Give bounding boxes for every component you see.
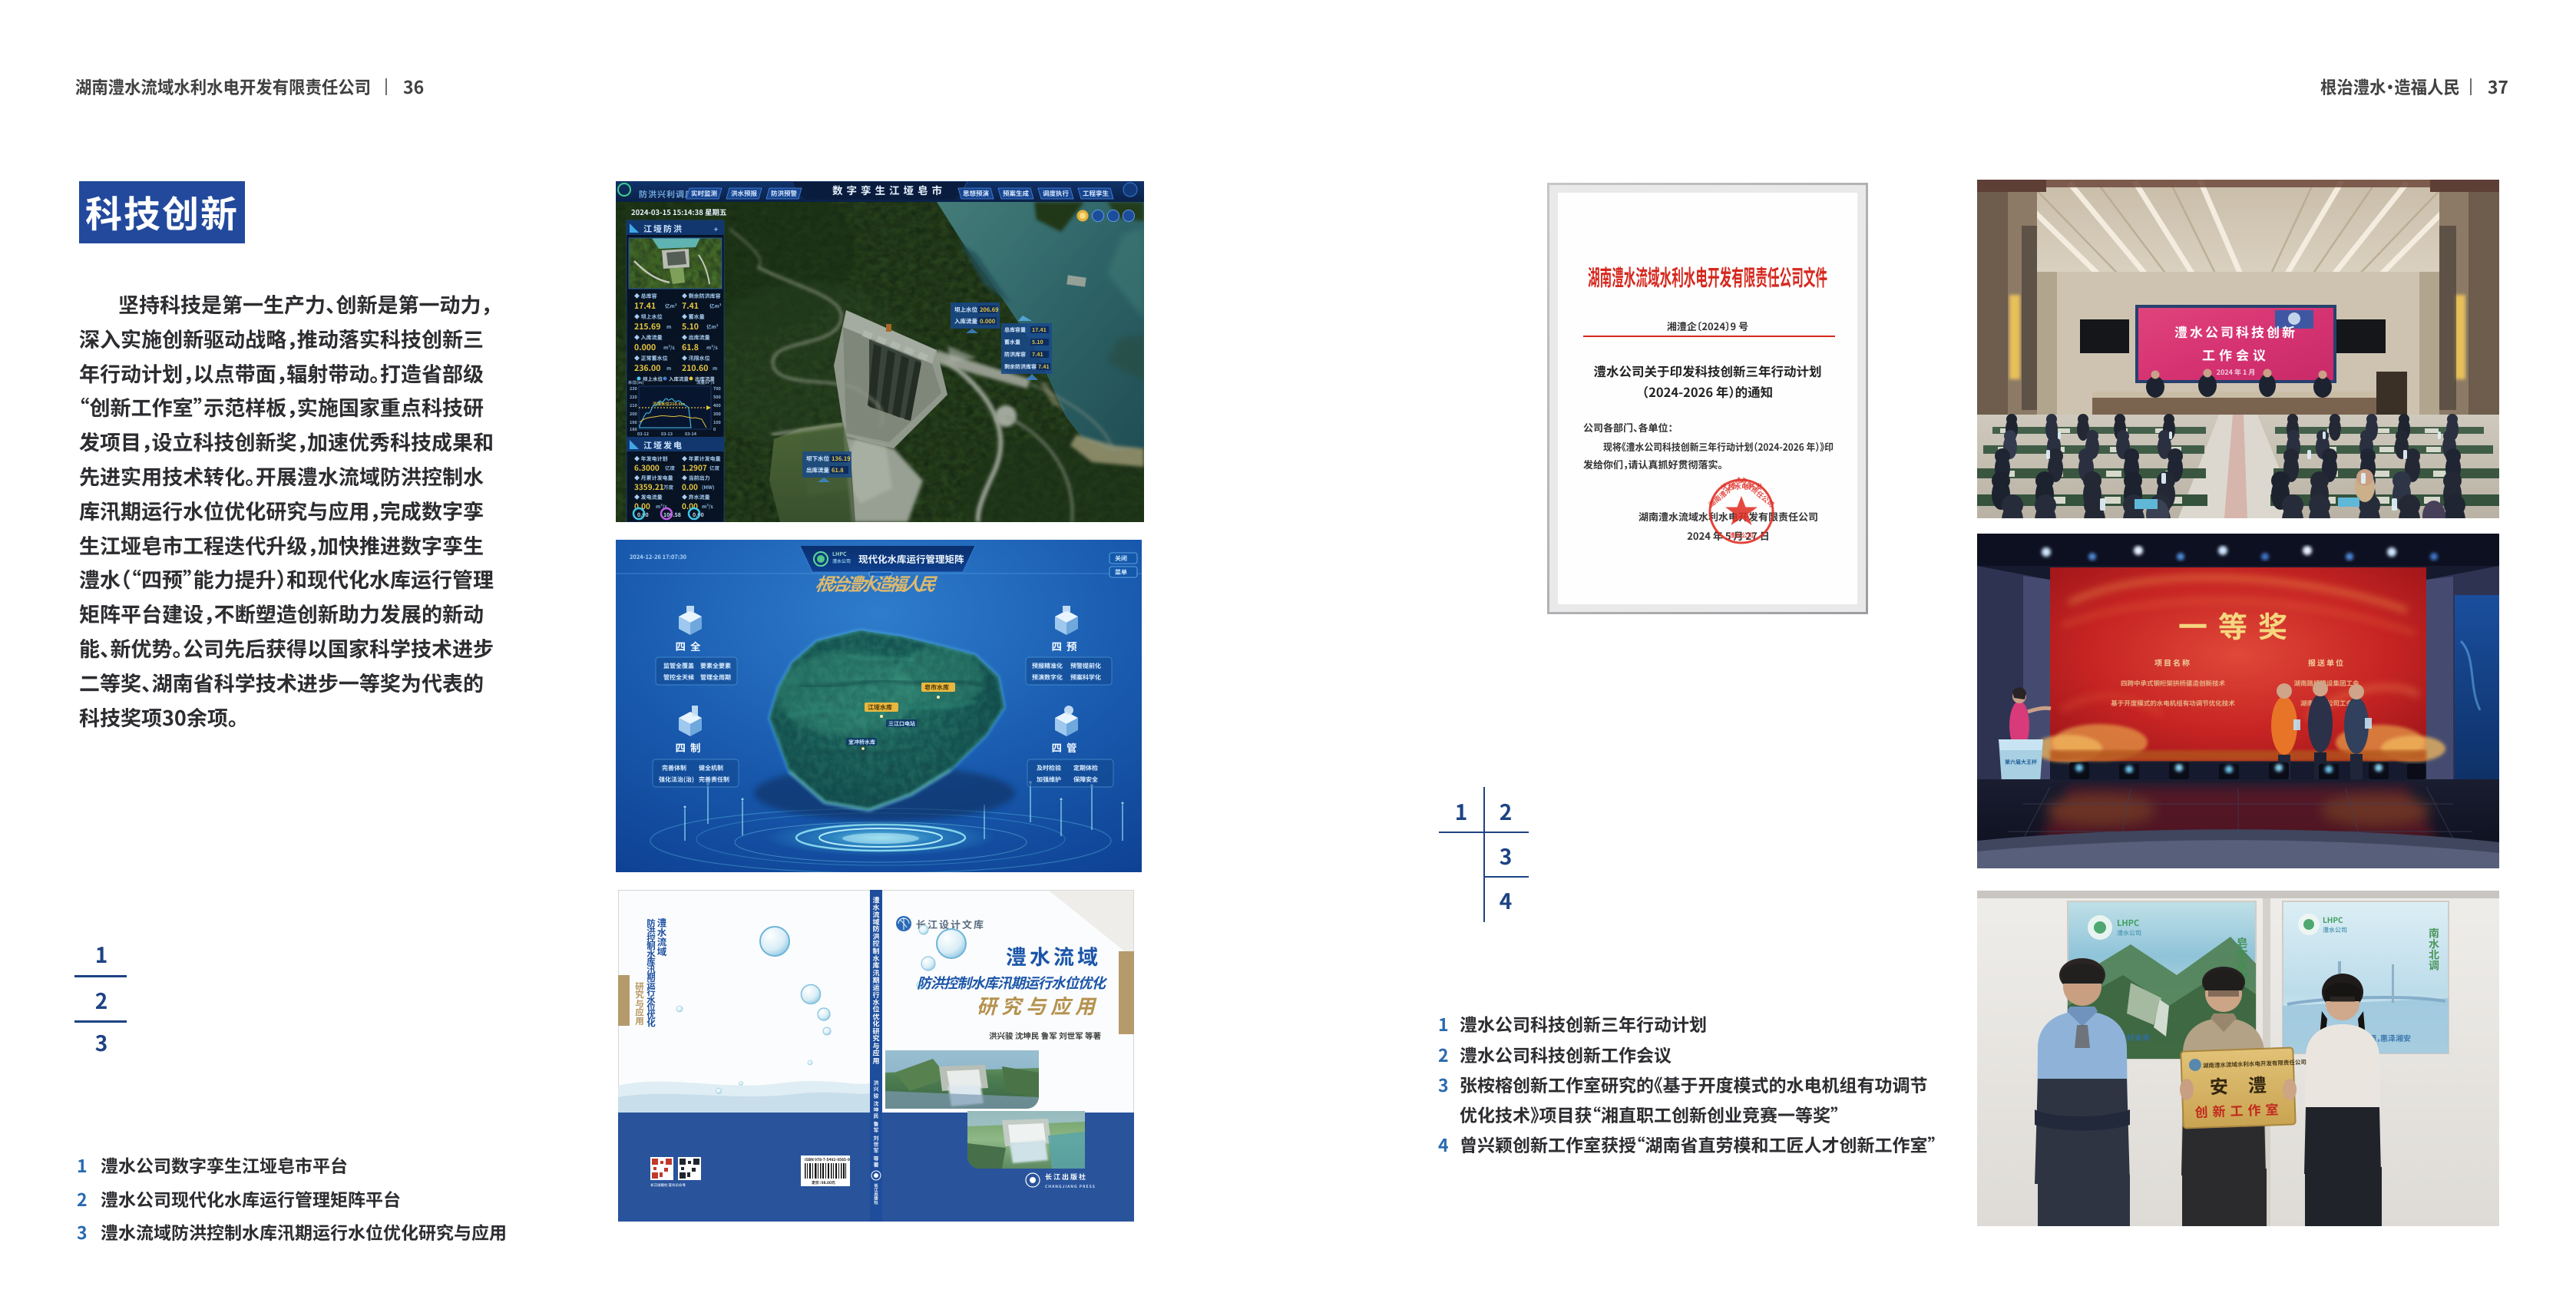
svg-text:m³/s: m³/s	[706, 343, 718, 351]
svg-text:长江出版社 官方公众号: 长江出版社 官方公众号	[650, 1183, 686, 1188]
svg-text:长江出版社: 长江出版社	[1045, 1172, 1087, 1182]
svg-text:数字孪生江垭皂市: 数字孪生江垭皂市	[832, 182, 946, 197]
svg-text:防洪库容: 防洪库容	[1004, 351, 1026, 359]
svg-text:关闭: 关闭	[1115, 554, 1127, 563]
svg-text:长江出版社: 长江出版社	[873, 1183, 879, 1205]
svg-text:亿m³: 亿m³	[706, 322, 719, 330]
svg-text:0.000: 0.000	[634, 342, 656, 353]
svg-text:完善体制: 完善体制	[662, 764, 686, 772]
svg-text:定期体检: 定期体检	[1073, 764, 1098, 772]
svg-text:健全机制: 健全机制	[699, 764, 723, 772]
svg-text:17.41: 17.41	[1032, 326, 1047, 334]
svg-text:亿度: 亿度	[709, 464, 720, 471]
svg-text:◆ 汛限水位: ◆ 汛限水位	[682, 355, 710, 362]
svg-text:四全: 四全	[676, 638, 706, 653]
svg-text:坝下水位: 坝下水位	[806, 455, 829, 463]
svg-text:1.2907: 1.2907	[682, 461, 707, 473]
svg-text:预警提前化: 预警提前化	[1070, 662, 1101, 670]
svg-text:防洪控制水库汛期运行水位优化: 防洪控制水库汛期运行水位优化	[645, 918, 657, 1027]
svg-text:ISBN 978-7-5492-9565-9: ISBN 978-7-5492-9565-9	[805, 1157, 850, 1162]
svg-text:（2024-2026 年）的通知: （2024-2026 年）的通知	[1642, 382, 1773, 401]
svg-text:预案生成: 预案生成	[1003, 189, 1030, 198]
svg-text:◆ 入库流量: ◆ 入库流量	[634, 334, 663, 342]
svg-text:预演数字化: 预演数字化	[1032, 673, 1063, 682]
svg-text:m: m	[713, 364, 717, 372]
svg-text:180: 180	[630, 426, 637, 432]
svg-text:m: m	[666, 364, 671, 372]
svg-text:亿度: 亿度	[665, 464, 676, 471]
svg-text:万度: 万度	[663, 483, 674, 491]
svg-text:◆ 剩余防洪库容: ◆ 剩余防洪库容	[682, 293, 721, 300]
svg-text:m³/s: m³/s	[702, 502, 713, 510]
svg-text:0: 0	[713, 426, 716, 432]
svg-text:2024 年 1 月: 2024 年 1 月	[2217, 367, 2256, 377]
svg-text:创新工作室: 创新工作室	[2194, 1099, 2283, 1121]
svg-text:◆ 总库容: ◆ 总库容	[634, 293, 657, 300]
svg-text:◆ 坝上水位: ◆ 坝上水位	[634, 313, 663, 321]
svg-text:7.41: 7.41	[1032, 351, 1043, 359]
svg-text:澧水公司: 澧水公司	[2117, 929, 2141, 937]
svg-text:实时监测: 实时监测	[691, 189, 717, 198]
svg-text:流量m³/s: 流量m³/s	[696, 379, 715, 385]
svg-text:一等奖: 一等奖	[2178, 603, 2298, 646]
svg-text:思想预演: 思想预演	[963, 189, 990, 198]
svg-text:03-13: 03-13	[661, 431, 673, 437]
svg-text:四制: 四制	[676, 739, 706, 755]
svg-text:700: 700	[713, 385, 721, 392]
svg-text:澧水流域: 澧水流域	[1006, 941, 1101, 970]
svg-text:0.00: 0.00	[682, 481, 698, 492]
svg-text:6.3000: 6.3000	[634, 461, 660, 473]
svg-text:400: 400	[713, 402, 721, 408]
svg-text:澧水公司: 澧水公司	[2323, 926, 2347, 934]
svg-text:m³/s: m³/s	[663, 343, 675, 351]
svg-text:湖南澧水流域水利水电开发有限责任公司: 湖南澧水流域水利水电开发有限责任公司	[1639, 509, 1818, 524]
svg-text:坝上水位: 坝上水位	[643, 375, 663, 382]
svg-text:强化法治(治): 强化法治(治)	[659, 775, 694, 784]
svg-text:0.000: 0.000	[980, 317, 996, 326]
svg-text:根治澧水 造福人民: 根治澧水 造福人民	[814, 570, 940, 596]
svg-text:+: +	[714, 224, 718, 234]
svg-text:215.69: 215.69	[634, 321, 660, 332]
svg-text:◆ 蓄水量: ◆ 蓄水量	[682, 313, 705, 321]
svg-text:LHPC: LHPC	[2117, 917, 2139, 929]
svg-text:现代化水库运行管理矩阵: 现代化水库运行管理矩阵	[858, 551, 964, 566]
svg-text:206.69: 206.69	[980, 306, 999, 314]
svg-text:100: 100	[713, 419, 721, 425]
svg-text:防洪预警: 防洪预警	[771, 189, 798, 198]
svg-text:澧水公司: 澧水公司	[832, 557, 851, 564]
svg-text:(MW): (MW)	[702, 483, 714, 491]
svg-text:236.00: 236.00	[634, 362, 660, 374]
svg-text:7.41: 7.41	[682, 300, 699, 312]
svg-text:洪兴骏 沈坤民 鲁军 刘世军 等著: 洪兴骏 沈坤民 鲁军 刘世军 等著	[989, 1030, 1101, 1042]
svg-text:坝上水位: 坝上水位	[954, 306, 977, 314]
svg-text:入库流量: 入库流量	[669, 375, 689, 382]
svg-text:澧水公司科技创新: 澧水公司科技创新	[2174, 322, 2297, 341]
svg-text:03-12: 03-12	[637, 431, 649, 437]
svg-text:61.8: 61.8	[832, 466, 844, 474]
svg-text:预报精准化: 预报精准化	[1032, 662, 1063, 670]
svg-text:报送单位: 报送单位	[2308, 656, 2345, 668]
svg-text:发给你们，请认真抓好贯彻落实。: 发给你们，请认真抓好贯彻落实。	[1583, 457, 1723, 471]
svg-text:3359.21: 3359.21	[634, 481, 664, 492]
svg-text:调度执行: 调度执行	[1043, 189, 1070, 198]
svg-text:亿m³: 亿m³	[665, 302, 677, 309]
svg-text:澧水公司: 澧水公司	[1729, 531, 1754, 540]
svg-text:江垭防洪: 江垭防洪	[643, 223, 683, 235]
svg-text:190: 190	[630, 419, 637, 425]
svg-text:蓄水量: 蓄水量	[1004, 339, 1020, 346]
svg-text:澧水流域防洪控制水库汛期运行水位优化研究与应用: 澧水流域防洪控制水库汛期运行水位优化研究与应用	[871, 896, 881, 1064]
svg-text:江垭发电: 江垭发电	[643, 439, 683, 451]
svg-text:澧水公司关于印发科技创新三年行动计划: 澧水公司关于印发科技创新三年行动计划	[1594, 362, 1822, 380]
svg-text:2024-12-26 17:07:30: 2024-12-26 17:07:30	[630, 553, 687, 561]
svg-text:四管: 四管	[1052, 739, 1082, 755]
svg-text:加强维护: 加强维护	[1037, 775, 1061, 784]
svg-text:防洪兴利调度: 防洪兴利调度	[639, 188, 694, 200]
svg-text:保障安全: 保障安全	[1073, 775, 1098, 784]
svg-text:江垭水库: 江垭水库	[868, 703, 892, 712]
svg-text:定价：98.00元: 定价：98.00元	[812, 1180, 835, 1185]
svg-text:及时检验: 及时检验	[1037, 764, 1061, 772]
svg-text:亿m³: 亿m³	[709, 302, 722, 309]
svg-text:三江口电站: 三江口电站	[888, 720, 915, 728]
svg-text:61.8: 61.8	[682, 342, 699, 353]
svg-text:研究与应用: 研究与应用	[977, 991, 1100, 1020]
svg-text:管控全天候: 管控全天候	[663, 673, 694, 682]
svg-text:17.41: 17.41	[634, 300, 656, 312]
svg-text:要素全要素: 要素全要素	[700, 662, 731, 670]
svg-text:◆ 出库流量: ◆ 出库流量	[682, 334, 710, 342]
svg-text:项目名称: 项目名称	[2154, 656, 2191, 668]
svg-text:菜单: 菜单	[1115, 568, 1127, 577]
svg-text:管理全周期: 管理全周期	[700, 673, 731, 682]
svg-text:湖南澧水流域水利水电开发有限责任公司文件: 湖南澧水流域水利水电开发有限责任公司文件	[1588, 260, 1827, 293]
svg-text:210: 210	[630, 402, 637, 408]
svg-text:03-14: 03-14	[685, 431, 697, 437]
svg-text:220: 220	[630, 394, 637, 400]
svg-text:基于开度模式的水电机组有功调节优化技术: 基于开度模式的水电机组有功调节优化技术	[2111, 699, 2235, 708]
svg-text:水位(m): 水位(m)	[628, 379, 643, 385]
svg-text:入库流量: 入库流量	[954, 317, 977, 326]
svg-text:CHANGJIANG PRESS: CHANGJIANG PRESS	[1045, 1184, 1096, 1189]
svg-text:136.19: 136.19	[832, 455, 851, 463]
svg-text:安澧: 安澧	[2209, 1070, 2287, 1099]
svg-text:研究与应用: 研究与应用	[633, 981, 646, 1026]
svg-text:完善责任制: 完善责任制	[699, 775, 729, 784]
svg-text:四跨中承式钢桁架拱桥建造创新技术: 四跨中承式钢桁架拱桥建造创新技术	[2121, 679, 2226, 688]
svg-text:监管全覆盖: 监管全覆盖	[663, 662, 694, 670]
svg-text:LHPC: LHPC	[2323, 914, 2343, 925]
svg-text:m: m	[666, 322, 671, 330]
svg-text:宜冲桥水库: 宜冲桥水库	[848, 739, 875, 746]
svg-text:230: 230	[630, 385, 637, 392]
svg-text:总库容量: 总库容量	[1004, 326, 1026, 334]
svg-text:7.41: 7.41	[1038, 363, 1050, 371]
svg-text:500: 500	[713, 394, 721, 400]
svg-text:出库流量: 出库流量	[806, 466, 829, 474]
svg-text:南水北调: 南水北调	[2426, 927, 2442, 971]
svg-text:5.10: 5.10	[1032, 339, 1043, 346]
svg-text:防洪控制水库汛期运行水位优化: 防洪控制水库汛期运行水位优化	[917, 973, 1108, 993]
svg-text:四预: 四预	[1052, 638, 1082, 653]
svg-text:洪水预报: 洪水预报	[731, 189, 758, 198]
svg-text:第六届大王杯: 第六届大王杯	[2005, 759, 2037, 766]
svg-text:洪兴骏 沈坤民 鲁军 刘世军 等著: 洪兴骏 沈坤民 鲁军 刘世军 等著	[872, 1080, 880, 1168]
svg-text:210.60: 210.60	[682, 362, 708, 374]
svg-text:200: 200	[630, 411, 637, 417]
svg-text:公司各部门、各单位：: 公司各部门、各单位：	[1583, 420, 1673, 435]
svg-text:预案科学化: 预案科学化	[1070, 673, 1101, 682]
svg-text:工程孪生: 工程孪生	[1083, 189, 1109, 198]
svg-text:5.10: 5.10	[682, 321, 699, 332]
svg-text:现将《澧水公司科技创新三年行动计划（2024-2026 年）: 现将《澧水公司科技创新三年行动计划（2024-2026 年）》印	[1603, 439, 1834, 454]
svg-text:湘澧企〔2024〕9 号: 湘澧企〔2024〕9 号	[1667, 319, 1748, 333]
svg-text:剩余防洪库容: 剩余防洪库容	[1004, 363, 1037, 371]
svg-text:2024-03-15 15:14:38 星期五: 2024-03-15 15:14:38 星期五	[631, 207, 727, 217]
svg-text:皂市水库: 皂市水库	[924, 683, 949, 692]
svg-text:300: 300	[713, 411, 721, 417]
svg-text:工作会议: 工作会议	[2202, 345, 2270, 364]
svg-text:◆ 正常蓄水位: ◆ 正常蓄水位	[634, 355, 668, 362]
